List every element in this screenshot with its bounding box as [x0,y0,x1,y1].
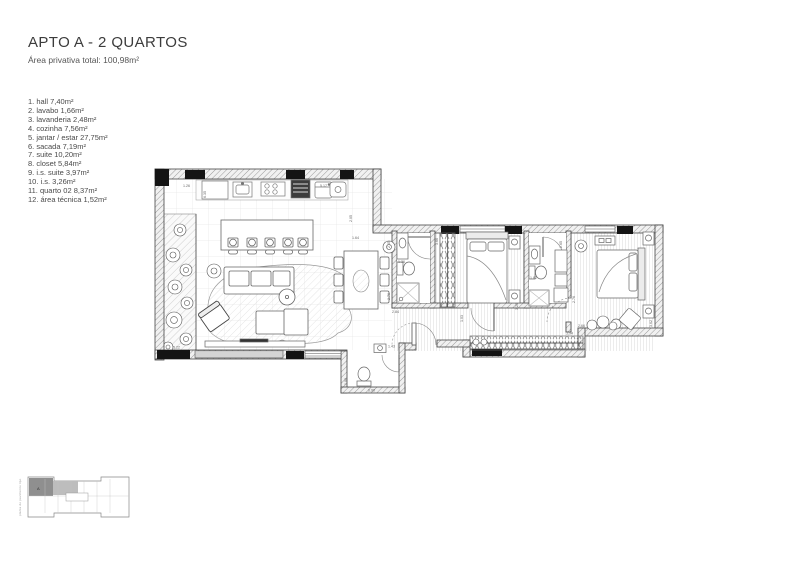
kitchen-island [221,220,313,254]
dimension-label: 2.76 [572,296,576,303]
shower-icon [529,290,549,306]
bed-quarto02 [466,232,508,303]
side-table [279,289,295,305]
dimension-label: 3.62 [649,320,653,327]
dimension-label: 5.17 [320,184,327,188]
plant-icon [207,264,221,278]
dimension-label: 1.00 [344,378,348,385]
nightstand [509,236,520,249]
door-arc [382,355,399,372]
sink-icon [233,182,252,197]
dimension-label: 6.35 [203,191,207,198]
nightstand [643,305,654,318]
dimension-label: 0.90 [368,389,375,393]
bed-suite [597,248,645,300]
dimension-label: 3.66 [435,238,439,245]
floor-plan-canvas: 1.26 5.17 6.35 5.22 2.05 1.64 2.65 1.36 … [0,0,800,566]
chaise [256,309,308,335]
sink-icon [399,238,406,248]
hall-closet [470,336,583,350]
sink-icon [374,344,386,353]
tv-icon [240,339,268,342]
dimension-label: 2.66 [578,324,585,328]
dimension-label: 5.22 [173,346,180,350]
shower-icon [397,283,419,303]
dimension-label: 1.43 [388,345,395,349]
keyplan-unit-label: A [37,486,40,491]
dimension-label: 3.94 [566,332,573,336]
nightstand [643,232,654,245]
dimension-label: 2.65 [387,241,391,248]
dimension-label: 1.26 [183,184,190,188]
centerpiece [353,270,369,292]
keyplan-unit-a [29,478,53,496]
dimension-label: 2.65 [559,241,563,248]
keyplan: planta do pavimento tipo A [18,477,129,517]
page: { "header": { "title": "APTO A - 2 QUART… [0,0,800,566]
nightstand [509,290,520,303]
kitchen-counter [196,180,348,200]
sink-icon [531,249,537,259]
suite-closet [554,250,568,302]
dimension-label: 1.82 [530,276,537,280]
dimension-label: 2.84 [392,310,399,314]
dimension-label: 2.05 [349,215,353,222]
dining-area [334,251,389,309]
keyplan-caption: planta do pavimento tipo [18,478,22,516]
dresser [595,236,615,245]
oven-icon [291,180,310,198]
dimension-label: 1.03 [460,315,464,322]
dimension-label: 3.20 [515,303,519,310]
dimension-label: 2.76 [387,293,391,300]
toilet-icon [357,367,371,386]
bathroom-is [397,233,430,303]
dimension-label: 1.64 [352,236,359,240]
cooktop-icon [261,182,285,196]
dimension-label: 1.36 [398,260,405,264]
balcony-sacada [163,214,196,352]
plant-icon [575,240,587,252]
laundry-sink-icon [330,182,346,197]
